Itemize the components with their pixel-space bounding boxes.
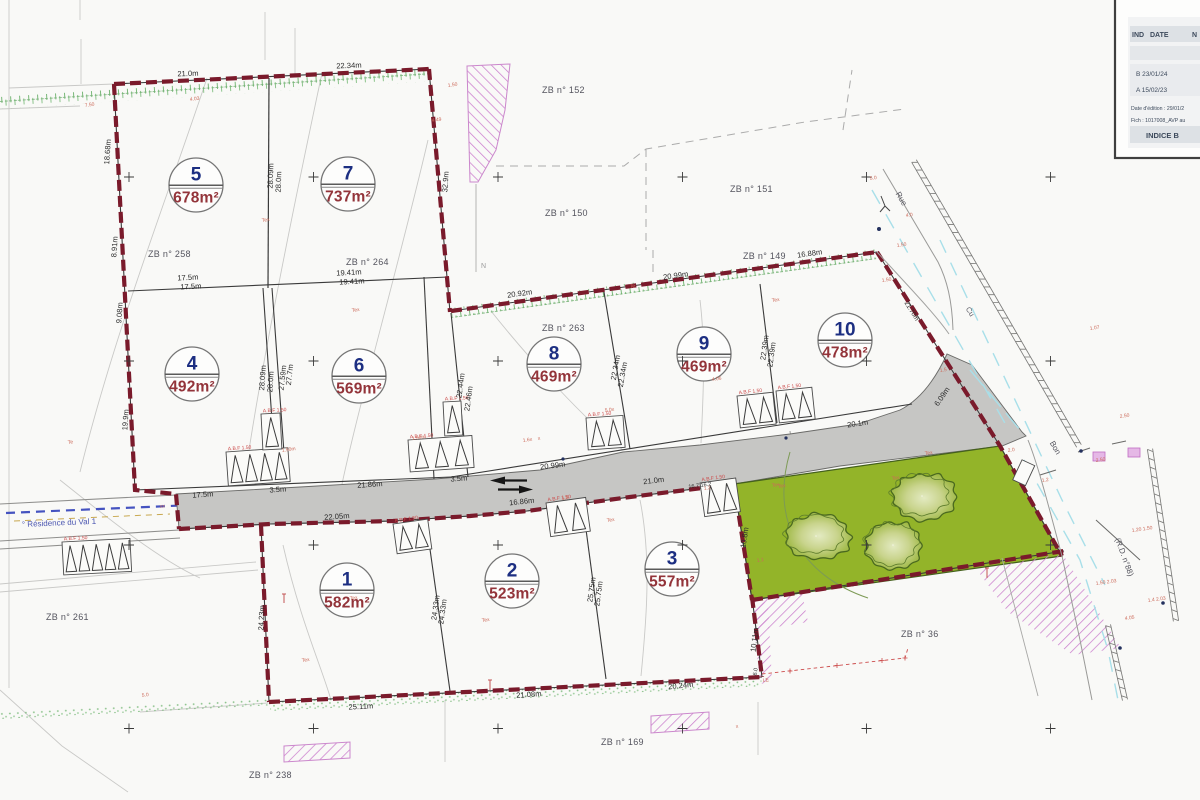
svg-text:469m²: 469m² — [531, 369, 577, 386]
svg-text:7: 7 — [343, 164, 354, 185]
svg-text:737m²: 737m² — [325, 189, 371, 206]
svg-text:1.5: 1.5 — [561, 495, 569, 502]
svg-text:8: 8 — [549, 344, 560, 365]
svg-text:Tex: Tex — [891, 475, 900, 482]
svg-text:557m²: 557m² — [649, 574, 695, 591]
svg-text:32.9m: 32.9m — [440, 171, 450, 193]
svg-text:25.11m: 25.11m — [348, 701, 373, 711]
svg-text:ZB n° 152: ZB n° 152 — [542, 85, 585, 95]
svg-text:ZB n° 264: ZB n° 264 — [346, 257, 389, 267]
svg-text:N: N — [481, 263, 486, 270]
svg-text:ZB n° 238: ZB n° 238 — [249, 770, 292, 780]
svg-text:492m²: 492m² — [169, 379, 215, 396]
svg-text:Tex: Tex — [924, 450, 933, 457]
svg-text:8.91m: 8.91m — [109, 236, 119, 258]
svg-text:N: N — [1192, 32, 1197, 39]
svg-text:Tex: Tex — [777, 483, 786, 490]
svg-text:9: 9 — [699, 334, 710, 355]
svg-text:523m²: 523m² — [489, 586, 535, 603]
svg-text:ZB n° 169: ZB n° 169 — [601, 737, 644, 747]
svg-text:469m²: 469m² — [681, 359, 727, 376]
svg-text:Tex: Tex — [351, 307, 360, 314]
svg-text:21.0m: 21.0m — [177, 69, 198, 79]
svg-text:DATE: DATE — [1150, 32, 1169, 39]
svg-text:24.23m: 24.23m — [256, 605, 266, 631]
svg-text:28.0m: 28.0m — [265, 371, 275, 393]
svg-text:9.08m: 9.08m — [114, 302, 124, 324]
svg-text:ZB n° 151: ZB n° 151 — [730, 184, 773, 194]
svg-text:ZB n° 263: ZB n° 263 — [542, 323, 585, 333]
svg-text:19.9m: 19.9m — [120, 409, 130, 431]
svg-text:A.B.F 1.50: A.B.F 1.50 — [64, 535, 88, 542]
svg-text:28.0m: 28.0m — [274, 171, 284, 192]
svg-text:3.5m: 3.5m — [450, 473, 467, 483]
svg-text:582m²: 582m² — [324, 595, 370, 612]
svg-text:1: 1 — [342, 570, 353, 591]
svg-text:1.2: 1.2 — [1041, 477, 1049, 484]
svg-text:ZB n° 261: ZB n° 261 — [46, 612, 89, 622]
svg-text:A.B.F 1.50: A.B.F 1.50 — [263, 407, 287, 414]
svg-text:Date d'édition : 29/01/2: Date d'édition : 29/01/2 — [1131, 106, 1184, 112]
svg-text:Tex: Tex — [261, 217, 270, 224]
svg-text:INDICE B: INDICE B — [1146, 131, 1180, 140]
svg-text:22.34m: 22.34m — [336, 61, 362, 71]
svg-text:4: 4 — [187, 354, 198, 375]
svg-text:Tex: Tex — [301, 657, 310, 664]
svg-text:17.5m: 17.5m — [192, 489, 214, 499]
svg-text:Te: Te — [67, 439, 73, 446]
svg-text:18.68m: 18.68m — [102, 139, 113, 165]
svg-text:3.5m: 3.5m — [269, 484, 286, 494]
svg-text:Fich : 1017008_AVP au: Fich : 1017008_AVP au — [1131, 118, 1185, 124]
svg-text:1.2: 1.2 — [703, 485, 711, 492]
svg-text:Tex: Tex — [606, 517, 615, 524]
svg-text:A 15/02/23: A 15/02/23 — [1136, 87, 1167, 94]
svg-text:ZB n° 258: ZB n° 258 — [148, 249, 191, 259]
svg-text:5.0: 5.0 — [141, 692, 149, 699]
svg-text:3: 3 — [667, 549, 678, 570]
svg-text:ZB n° 36: ZB n° 36 — [901, 629, 939, 639]
svg-text:21.86m: 21.86m — [357, 479, 383, 490]
svg-text:10: 10 — [834, 320, 855, 341]
svg-text:19.41m: 19.41m — [339, 276, 365, 286]
svg-text:Tex: Tex — [349, 595, 358, 602]
svg-text:678m²: 678m² — [173, 190, 219, 207]
svg-text:ZB n° 150: ZB n° 150 — [545, 208, 588, 218]
svg-text:6: 6 — [354, 356, 365, 377]
svg-text:569m²: 569m² — [336, 381, 382, 398]
svg-text:Tex: Tex — [771, 297, 780, 304]
svg-text:5.0: 5.0 — [869, 175, 877, 182]
svg-text:1.5: 1.5 — [939, 367, 947, 374]
svg-text:17.5m: 17.5m — [180, 281, 202, 291]
svg-text:Te: Te — [629, 283, 635, 290]
svg-text:22.05m: 22.05m — [324, 511, 350, 522]
svg-text:B 23/01/24: B 23/01/24 — [1136, 71, 1168, 78]
svg-text:478m²: 478m² — [822, 345, 868, 362]
svg-text:IND: IND — [1132, 32, 1144, 39]
svg-text:Tex: Tex — [481, 617, 490, 624]
svg-text:2: 2 — [507, 561, 518, 582]
svg-text:5: 5 — [191, 165, 202, 186]
svg-text:2.0: 2.0 — [1007, 447, 1015, 454]
svg-text:ZB n° 149: ZB n° 149 — [743, 251, 786, 261]
svg-text:21.08m: 21.08m — [516, 689, 542, 700]
svg-text:1.1: 1.1 — [756, 557, 764, 564]
svg-text:4.0: 4.0 — [905, 212, 913, 219]
